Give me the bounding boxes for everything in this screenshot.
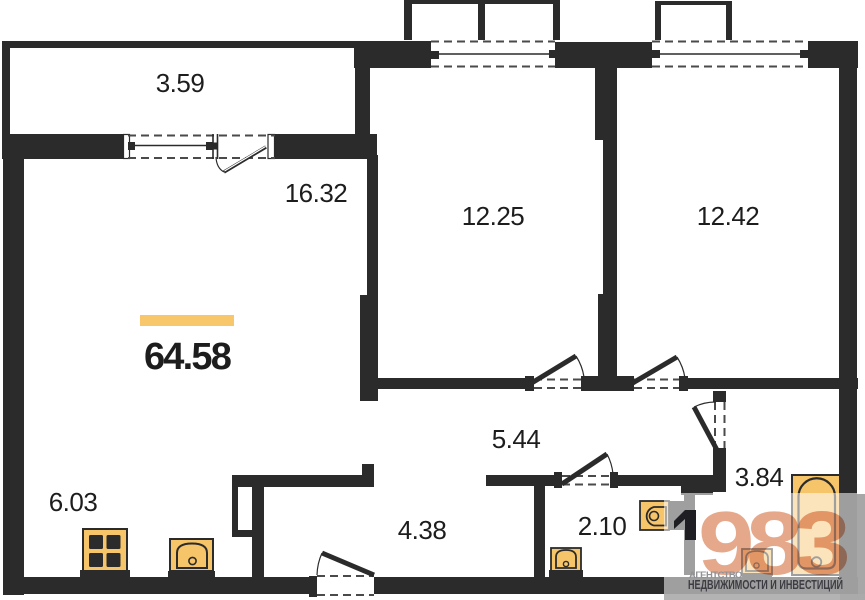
svg-text:2.10: 2.10	[578, 511, 627, 541]
svg-text:12.42: 12.42	[697, 201, 760, 231]
svg-text:16.32: 16.32	[285, 178, 348, 208]
svg-text:12.25: 12.25	[462, 201, 525, 231]
svg-text:3.59: 3.59	[156, 68, 205, 98]
svg-text:3.84: 3.84	[735, 462, 784, 492]
svg-text:6.03: 6.03	[49, 487, 98, 517]
svg-text:4.38: 4.38	[398, 515, 447, 545]
svg-text:НЕДВИЖИМОСТИ И ИНВЕСТИЦИЙ: НЕДВИЖИМОСТИ И ИНВЕСТИЦИЙ	[688, 577, 843, 592]
svg-text:5.44: 5.44	[492, 424, 541, 454]
svg-text:64.58: 64.58	[144, 336, 231, 378]
